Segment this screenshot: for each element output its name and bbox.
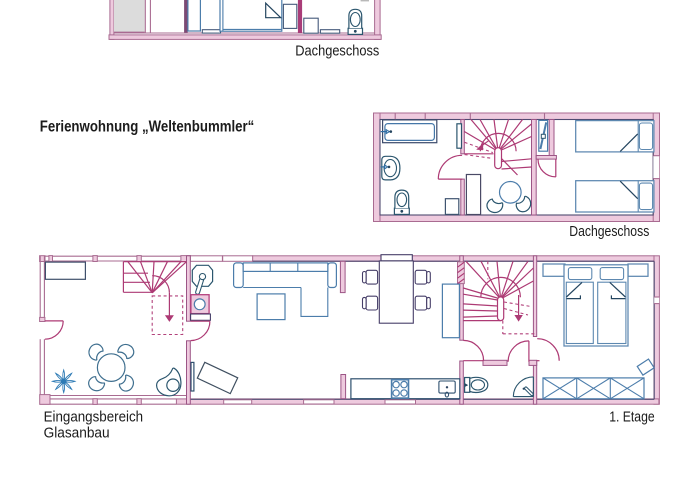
svg-text:Ferienwohnung „Weltenbummler“: Ferienwohnung „Weltenbummler“ (40, 119, 255, 136)
svg-text:Eingangsbereich: Eingangsbereich (44, 408, 144, 425)
svg-text:Dachgeschoss: Dachgeschoss (295, 42, 379, 59)
svg-text:1. Etage: 1. Etage (609, 409, 655, 426)
svg-text:Glasanbau: Glasanbau (44, 425, 110, 442)
svg-text:Dachgeschoss: Dachgeschoss (569, 223, 649, 240)
